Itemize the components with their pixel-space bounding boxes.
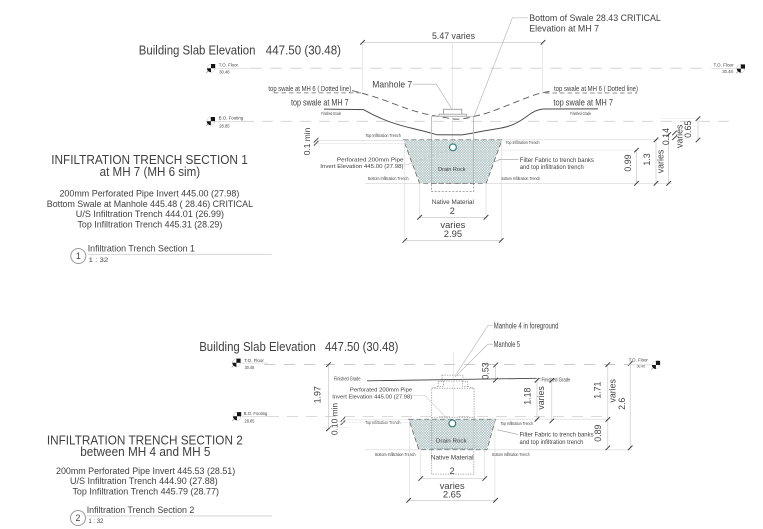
svg-text:at MH 7 (MH 6 sim): at MH 7 (MH 6 sim) [100, 164, 201, 179]
svg-text:Invert Elevation 445.00 (27.98: Invert Elevation 445.00 (27.98) [332, 394, 412, 400]
svg-text:2.65: 2.65 [443, 490, 461, 500]
svg-text:Drain Rock: Drain Rock [436, 439, 467, 445]
svg-text:2.6: 2.6 [617, 398, 627, 410]
svg-text:28.85: 28.85 [245, 419, 255, 425]
svg-text:top swale at MH 6 ( Dotted lin: top swale at MH 6 ( Dotted line) [554, 84, 638, 93]
svg-text:Manhole 4 in foreground: Manhole 4 in foreground [494, 321, 559, 330]
svg-text:200mm Perforated Pipe Invert 4: 200mm Perforated Pipe Invert 445.53 (28.… [56, 466, 235, 477]
svg-text:top swale at MH 6 ( Dotted lin: top swale at MH 6 ( Dotted line) [268, 84, 351, 93]
svg-text:28.85: 28.85 [219, 123, 230, 129]
svg-text:Manhole 7: Manhole 7 [372, 80, 412, 91]
svg-text:1: 1 [76, 251, 81, 261]
svg-text:0.99: 0.99 [623, 154, 633, 171]
svg-text:Perforated 200mm Pipe: Perforated 200mm Pipe [350, 388, 413, 394]
svg-text:Bottom Infiltration Trench: Bottom Infiltration Trench [501, 176, 541, 181]
svg-text:0.65: 0.65 [683, 121, 693, 138]
svg-text:T.O. Floor: T.O. Floor [219, 62, 239, 68]
svg-text:1.18: 1.18 [522, 388, 532, 405]
svg-text:Top Infiltration Trench 445.79: Top Infiltration Trench 445.79 (28.77) [72, 487, 219, 498]
svg-text:Top Infiltration Trench: Top Infiltration Trench [506, 140, 540, 145]
svg-text:0.10 min: 0.10 min [330, 403, 340, 435]
svg-text:U/S Infiltration Trench 444.01: U/S Infiltration Trench 444.01 (26.99) [76, 209, 224, 220]
svg-text:Elevation at MH 7: Elevation at MH 7 [529, 24, 599, 35]
svg-text:1.97: 1.97 [313, 386, 323, 403]
svg-text:Perforated 200mm Pipe: Perforated 200mm Pipe [337, 158, 404, 164]
svg-text:Bottom Swale at Manhole 445.48: Bottom Swale at Manhole 445.48 ( 28.46) … [47, 199, 254, 210]
svg-text:Infiltration Trench Section 1: Infiltration Trench Section 1 [88, 244, 195, 255]
svg-text:200mm Perforated Pipe Invert 4: 200mm Perforated Pipe Invert 445.00 (27.… [59, 188, 239, 199]
svg-text:B.O. Footing: B.O. Footing [244, 411, 268, 417]
svg-text:B.O. Footing: B.O. Footing [219, 116, 244, 122]
svg-text:2.95: 2.95 [444, 229, 462, 239]
svg-text:5.47 varies: 5.47 varies [432, 30, 475, 41]
svg-text:Native Material: Native Material [432, 199, 474, 206]
svg-text:Infiltration Trench Section 2: Infiltration Trench Section 2 [87, 505, 195, 516]
svg-text:and top infiltration trench: and top infiltration trench [520, 164, 584, 171]
svg-text:Invert Elevation 445.00 (27.98: Invert Elevation 445.00 (27.98) [320, 164, 403, 170]
svg-text:0.1 min: 0.1 min [302, 127, 312, 155]
svg-text:between MH 4 and MH 5: between MH 4 and MH 5 [80, 444, 210, 459]
svg-text:varies: varies [656, 149, 666, 173]
svg-text:1 : 32: 1 : 32 [88, 518, 103, 525]
svg-text:U/S Infiltration Trench 444.90: U/S Infiltration Trench 444.90 (27.88) [70, 476, 218, 487]
svg-text:top swale at MH 7: top swale at MH 7 [553, 98, 613, 109]
svg-text:1 : 32: 1 : 32 [89, 257, 109, 264]
svg-text:2: 2 [450, 466, 455, 476]
svg-text:447.50 (30.48): 447.50 (30.48) [325, 339, 398, 354]
svg-text:varies: varies [536, 386, 546, 410]
svg-text:0.14: 0.14 [661, 128, 671, 145]
svg-text:Top Infiltration Trench: Top Infiltration Trench [365, 420, 401, 425]
svg-text:Filter Fabric to trench banks: Filter Fabric to trench banks [520, 432, 595, 439]
svg-text:30.48: 30.48 [219, 70, 229, 76]
svg-text:Finished Grade: Finished Grade [570, 111, 591, 116]
svg-text:0.53: 0.53 [481, 362, 491, 379]
svg-text:0.89: 0.89 [593, 425, 603, 442]
svg-text:2: 2 [450, 206, 455, 216]
svg-text:Bottom Infiltration Trench: Bottom Infiltration Trench [492, 452, 530, 457]
svg-text:Bottom of Swale 28.43 CRITICAL: Bottom of Swale 28.43 CRITICAL [529, 13, 661, 24]
svg-text:Bottom Infiltration Trench: Bottom Infiltration Trench [368, 176, 409, 181]
svg-text:2: 2 [76, 513, 81, 523]
svg-text:Manhole 5: Manhole 5 [494, 340, 521, 349]
svg-text:30.48: 30.48 [722, 69, 733, 75]
svg-text:30.48: 30.48 [245, 365, 255, 371]
svg-text:1.71: 1.71 [592, 382, 602, 399]
svg-text:Bottom Infiltration Trench: Bottom Infiltration Trench [375, 452, 416, 457]
svg-text:Finished Grade: Finished Grade [321, 111, 341, 116]
svg-text:T.O. Floor: T.O. Floor [714, 63, 734, 69]
svg-text:Finished Grade: Finished Grade [334, 377, 361, 383]
svg-text:Native Material: Native Material [431, 454, 474, 461]
svg-text:Top Infiltration Trench 445.31: Top Infiltration Trench 445.31 (28.29) [77, 220, 222, 231]
svg-text:Building Slab Elevation: Building Slab Elevation [139, 42, 256, 57]
svg-text:and top infiltration trench: and top infiltration trench [520, 439, 584, 446]
svg-text:Drain Rock: Drain Rock [438, 167, 466, 173]
svg-text:447.50 (30.48): 447.50 (30.48) [266, 42, 341, 57]
svg-text:Building Slab Elevation: Building Slab Elevation [199, 339, 316, 354]
svg-text:Top Infiltration Trench: Top Infiltration Trench [365, 133, 401, 138]
svg-text:Top Infiltration Trench: Top Infiltration Trench [501, 421, 534, 426]
svg-text:1.3: 1.3 [642, 153, 652, 165]
svg-text:30.48: 30.48 [637, 363, 645, 369]
svg-text:top swale at MH 7: top swale at MH 7 [291, 98, 349, 109]
